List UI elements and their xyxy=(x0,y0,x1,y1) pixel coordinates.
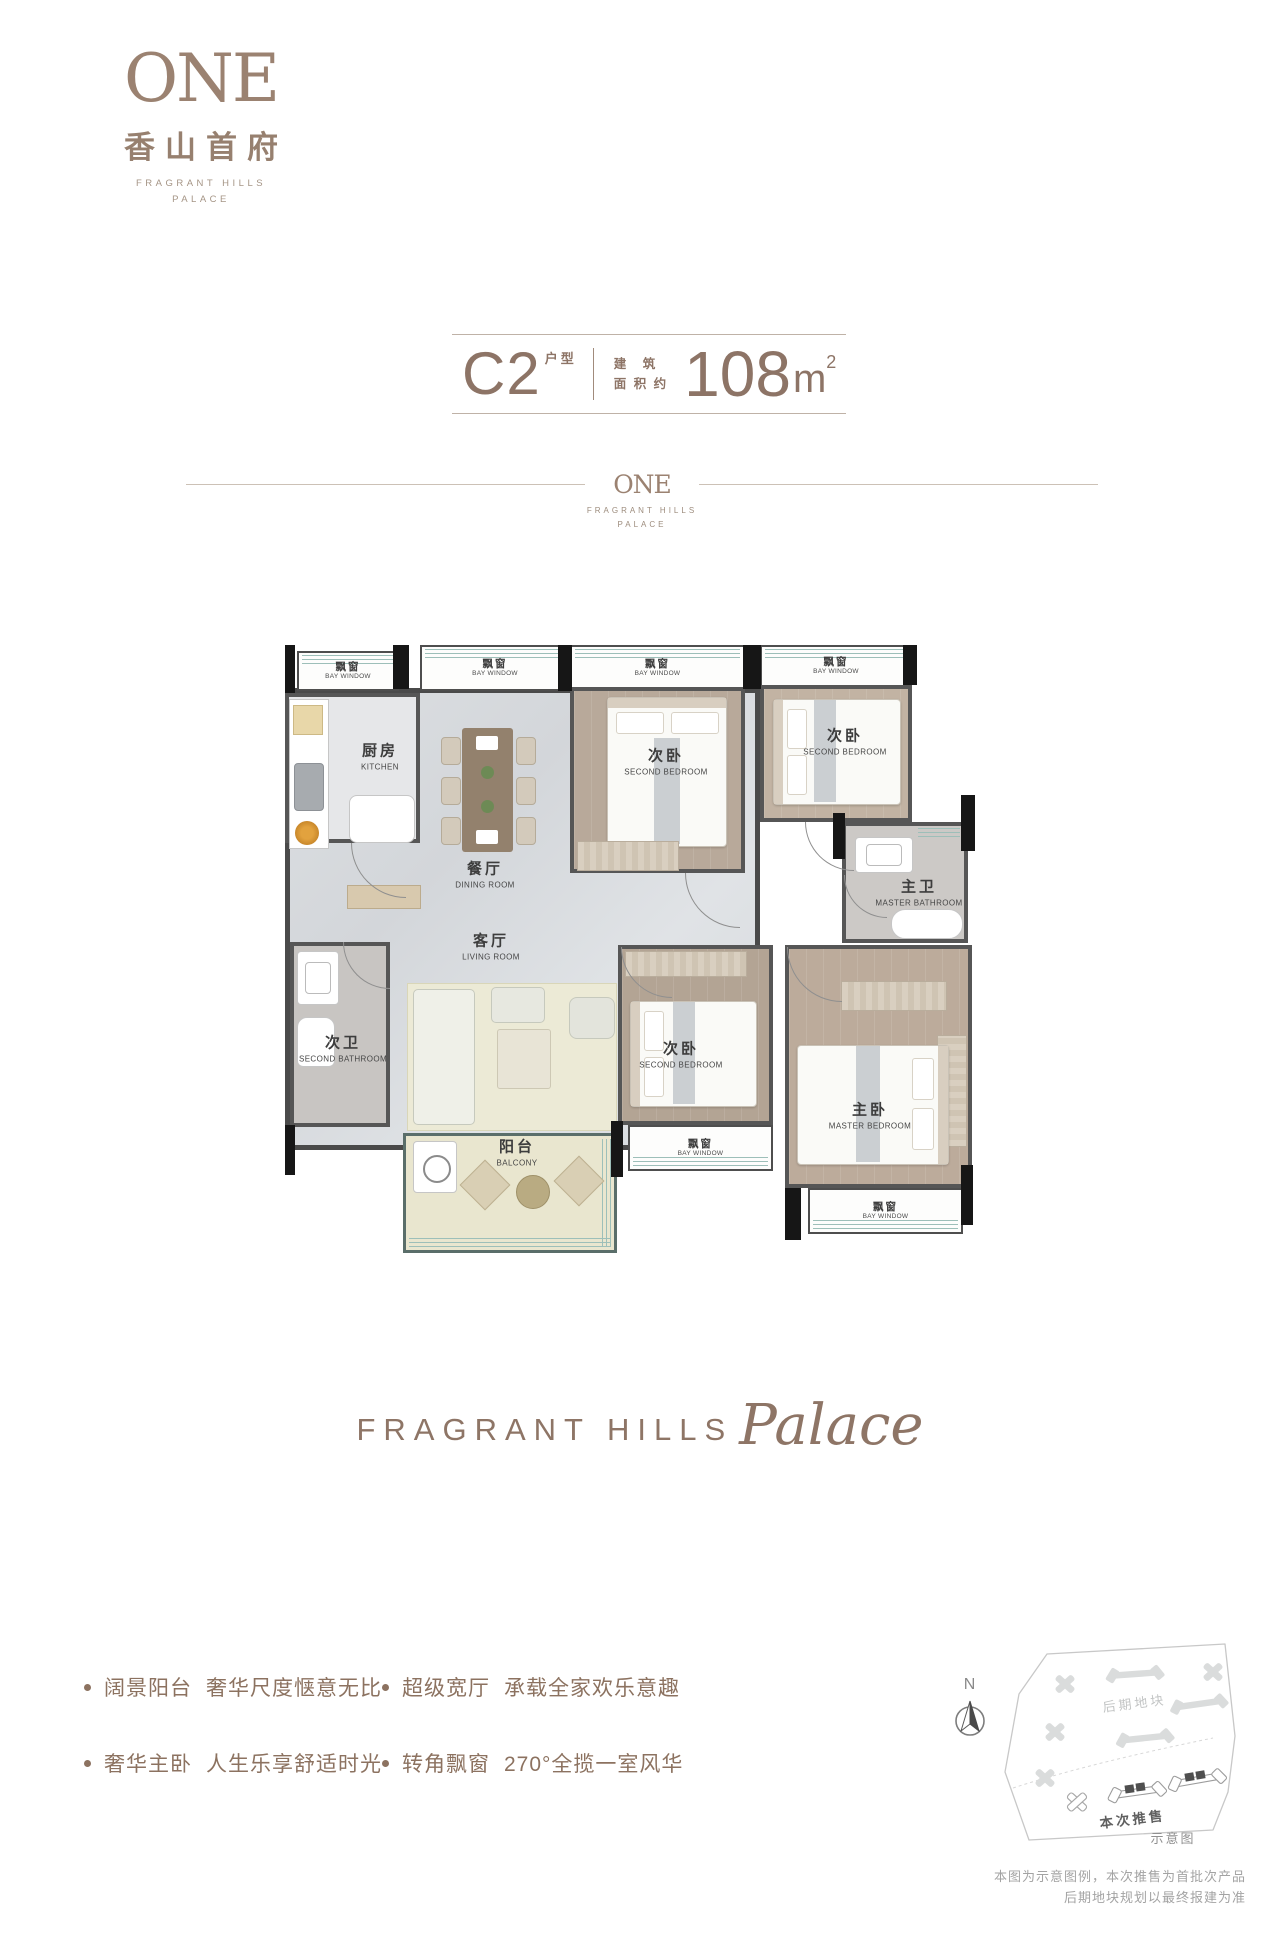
divider-line-right xyxy=(699,484,1098,485)
bed-pillow xyxy=(912,1108,934,1150)
unit-title: C2 户型 建 筑 面 积 约 108 m 2 xyxy=(452,334,846,414)
kitchen-island xyxy=(349,795,415,843)
plant-decor xyxy=(481,766,494,779)
master-bath-tub xyxy=(891,909,963,939)
bay-window-master: 飘窗BAY WINDOW xyxy=(808,1188,963,1234)
window-glazing xyxy=(633,1157,768,1167)
wardrobe xyxy=(841,981,947,1011)
sitemap-caption: 示意图 xyxy=(1128,1828,1218,1847)
bay-window-label-en: BAY WINDOW xyxy=(472,670,518,678)
room-label-bedroom-a: 次卧SECOND BEDROOM xyxy=(624,747,707,778)
bed-headboard xyxy=(938,1046,948,1164)
brand-logo: ONE 香山首府 FRAGRANT HILLS PALACE xyxy=(92,44,310,208)
brand-script-lockup: FRAGRANT HILLS Palace xyxy=(0,1398,1280,1454)
room-label-second-bath: 次卫SECOND BATHROOM xyxy=(299,1034,387,1065)
divider-subtext-line2: PALACE xyxy=(186,518,1098,532)
wall-segment xyxy=(611,1121,623,1177)
dining-chair xyxy=(441,777,461,805)
dining-chair xyxy=(516,817,536,845)
wall-segment xyxy=(961,795,975,851)
window-glazing xyxy=(409,1238,611,1248)
divider-subtext: FRAGRANT HILLS PALACE xyxy=(186,504,1098,533)
dining-chair xyxy=(441,817,461,845)
bullet-dot xyxy=(84,1684,91,1691)
area-unit: m xyxy=(793,356,826,402)
feature-item: 转角飘窗270°全揽一室风华 xyxy=(382,1748,694,1778)
window-glazing xyxy=(813,1220,958,1230)
coffee-table xyxy=(497,1029,551,1089)
brand-name-en: FRAGRANT HILLS PALACE xyxy=(92,176,310,208)
area-label: 建 筑 面 积 约 xyxy=(614,354,668,394)
bed-pillow xyxy=(671,712,719,734)
feature-item: 超级宽厅承载全家欢乐意趣 xyxy=(382,1672,694,1702)
table-setting xyxy=(476,830,498,844)
plant-decor xyxy=(481,800,494,813)
wall-segment xyxy=(743,645,761,689)
title-divider-line xyxy=(593,348,594,400)
bullet-dot xyxy=(84,1760,91,1767)
table-setting xyxy=(476,736,498,750)
sofa xyxy=(413,989,475,1125)
brand-script-word: Palace xyxy=(739,1398,923,1454)
bed-pillow xyxy=(616,712,664,734)
bay-window-label-en: BAY WINDOW xyxy=(813,668,859,676)
room-label-bedroom-c: 次卧SECOND BEDROOM xyxy=(639,1040,722,1071)
bed-headboard xyxy=(774,700,783,804)
unit-type-tag: 户型 xyxy=(545,348,577,367)
door-arc-bedroom-b xyxy=(805,822,854,871)
dining-chair xyxy=(441,737,461,765)
lounge-chair xyxy=(491,987,545,1023)
bay-window-label-en: BAY WINDOW xyxy=(325,673,371,681)
bullet-dot xyxy=(382,1760,389,1767)
bay-window-label-en: BAY WINDOW xyxy=(678,1150,724,1158)
kitchen-stove xyxy=(295,821,319,845)
room-label-master-bath: 主卫MASTER BATHROOM xyxy=(875,878,962,909)
balcony-table xyxy=(516,1175,550,1209)
bay-window-bedroom-b: 飘窗BAY WINDOW xyxy=(760,645,912,687)
bay-window-label-cn: 飘窗 xyxy=(863,1201,909,1214)
feature-desc: 奢华尺度惬意无比 xyxy=(206,1672,382,1702)
feature-title: 超级宽厅 xyxy=(402,1672,490,1702)
feature-desc: 人生乐享舒适时光 xyxy=(206,1748,382,1778)
washing-machine xyxy=(413,1141,457,1193)
room-label-dining: 餐厅DINING ROOM xyxy=(455,860,515,891)
bay-window-bedroom-c: 飘窗BAY WINDOW xyxy=(628,1125,773,1171)
bed-pillow xyxy=(912,1058,934,1100)
area-label-line2: 面 积 约 xyxy=(614,374,668,394)
site-plan-map: 后期地块 本次推售 xyxy=(985,1640,1243,1852)
bullet-dot xyxy=(382,1684,389,1691)
room-label-living: 客厅LIVING ROOM xyxy=(462,932,520,963)
wall-segment xyxy=(961,1165,973,1225)
feature-list: 阔景阳台奢华尺度惬意无比 超级宽厅承载全家欢乐意趣 奢华主卧人生乐享舒适时光 转… xyxy=(84,1672,694,1778)
kitchen-sink xyxy=(294,763,324,811)
kitchen-cutting-board xyxy=(293,705,323,735)
divider-one-mark: ONE xyxy=(613,470,671,499)
room-label-master-bedroom: 主卧MASTER BEDROOM xyxy=(829,1101,912,1132)
disclaimer: 本图为示意图例，本次推售为首批次产品 后期地块规划以最终报建为准 xyxy=(826,1866,1246,1909)
feature-item: 阔景阳台奢华尺度惬意无比 xyxy=(84,1672,382,1702)
unit-code: C2 xyxy=(462,347,541,401)
wall-segment xyxy=(393,645,409,689)
second-bath-sink xyxy=(297,951,339,1005)
divider-line-left xyxy=(186,484,585,485)
wall-segment xyxy=(558,645,572,691)
feature-desc: 承载全家欢乐意趣 xyxy=(504,1672,680,1702)
bed-pillow xyxy=(787,755,807,795)
bay-window-label-cn: 飘窗 xyxy=(813,656,859,669)
washer-drum xyxy=(423,1155,451,1183)
feature-desc: 270°全揽一室风华 xyxy=(504,1748,683,1778)
brand-name-en-line1: FRAGRANT HILLS xyxy=(92,176,310,192)
sink-basin xyxy=(305,962,331,994)
brand-script-caps: FRAGRANT HILLS xyxy=(356,1412,733,1448)
bay-window-label-cn: 飘窗 xyxy=(472,658,518,671)
bay-window-bedroom-a: 飘窗BAY WINDOW xyxy=(570,645,745,691)
disclaimer-line1: 本图为示意图例，本次推售为首批次产品 xyxy=(826,1866,1246,1887)
area-value: 108 xyxy=(684,346,791,402)
bay-window-label-cn: 飘窗 xyxy=(678,1138,724,1151)
floorplan-poster: ONE 香山首府 FRAGRANT HILLS PALACE C2 户型 建 筑… xyxy=(0,0,1280,1951)
window-glazing xyxy=(918,828,960,838)
feature-title: 奢华主卧 xyxy=(104,1748,192,1778)
wall-segment xyxy=(285,1125,295,1175)
feature-title: 阔景阳台 xyxy=(104,1672,192,1702)
floorplan-drawing: 飘窗BAY WINDOW 飘窗BAY WINDOW 飘窗BAY WINDOW 飘… xyxy=(285,645,1012,1273)
wardrobe xyxy=(577,841,679,871)
wall-segment xyxy=(903,645,917,685)
armchair xyxy=(569,997,615,1039)
bay-window-kitchen: 飘窗BAY WINDOW xyxy=(297,651,399,691)
feature-title: 转角飘窗 xyxy=(402,1748,490,1778)
dining-chair xyxy=(516,737,536,765)
bed-headboard xyxy=(608,698,726,708)
divider-subtext-line1: FRAGRANT HILLS xyxy=(186,504,1098,518)
wall-segment xyxy=(833,813,845,859)
brand-name-en-line2: PALACE xyxy=(92,192,310,208)
area-exponent: 2 xyxy=(826,352,836,373)
bay-window-label-cn: 飘窗 xyxy=(635,658,681,671)
dining-table xyxy=(462,728,513,852)
room-label-bedroom-b: 次卧SECOND BEDROOM xyxy=(803,727,886,758)
bay-window-label-en: BAY WINDOW xyxy=(635,670,681,678)
brand-name-cn: 香山首府 xyxy=(92,122,310,167)
one-logo-mark: ONE xyxy=(92,44,310,114)
feature-item: 奢华主卧人生乐享舒适时光 xyxy=(84,1748,382,1778)
disclaimer-line2: 后期地块规划以最终报建为准 xyxy=(826,1887,1246,1908)
sink-basin xyxy=(866,844,902,866)
room-label-kitchen: 厨房KITCHEN xyxy=(361,742,399,773)
area-label-line1: 建 筑 xyxy=(614,354,668,374)
wall-segment xyxy=(285,645,295,693)
bay-window-label-en: BAY WINDOW xyxy=(863,1213,909,1221)
room-label-balcony: 阳台BALCONY xyxy=(496,1138,537,1169)
bay-window-dining: 飘窗BAY WINDOW xyxy=(420,645,570,691)
bay-window-label-cn: 飘窗 xyxy=(325,661,371,674)
wall-segment xyxy=(785,1188,801,1240)
section-divider: ONE FRAGRANT HILLS PALACE xyxy=(186,470,1098,533)
master-bath-sink xyxy=(855,837,913,873)
dining-chair xyxy=(516,777,536,805)
